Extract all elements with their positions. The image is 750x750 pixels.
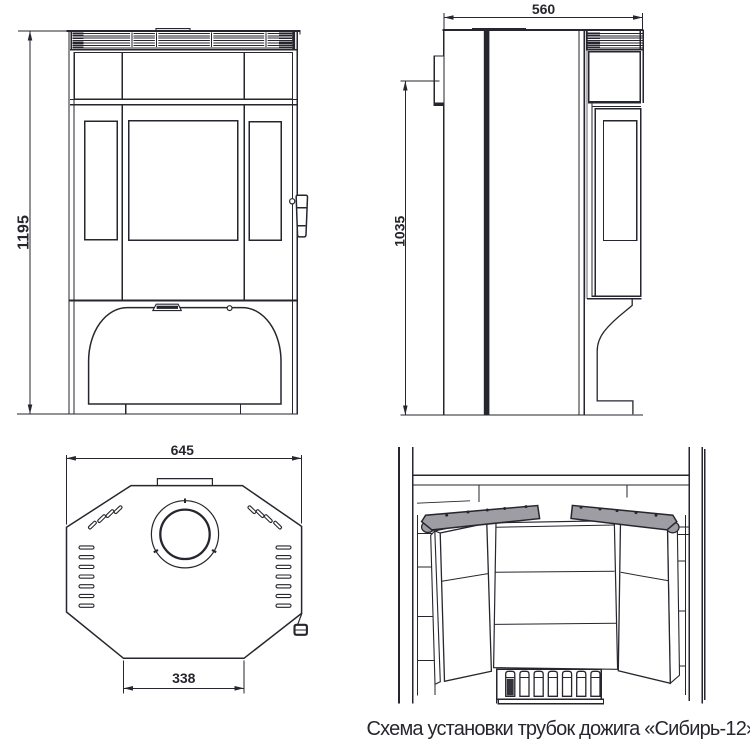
svg-text:1035: 1035 [391,216,407,247]
svg-text:1195: 1195 [16,215,33,250]
svg-text:338: 338 [172,670,196,686]
svg-text:Схема установки трубок дожига: Схема установки трубок дожига «Сибирь-12… [367,718,750,740]
svg-text:560: 560 [532,1,556,17]
svg-text:645: 645 [171,442,195,458]
